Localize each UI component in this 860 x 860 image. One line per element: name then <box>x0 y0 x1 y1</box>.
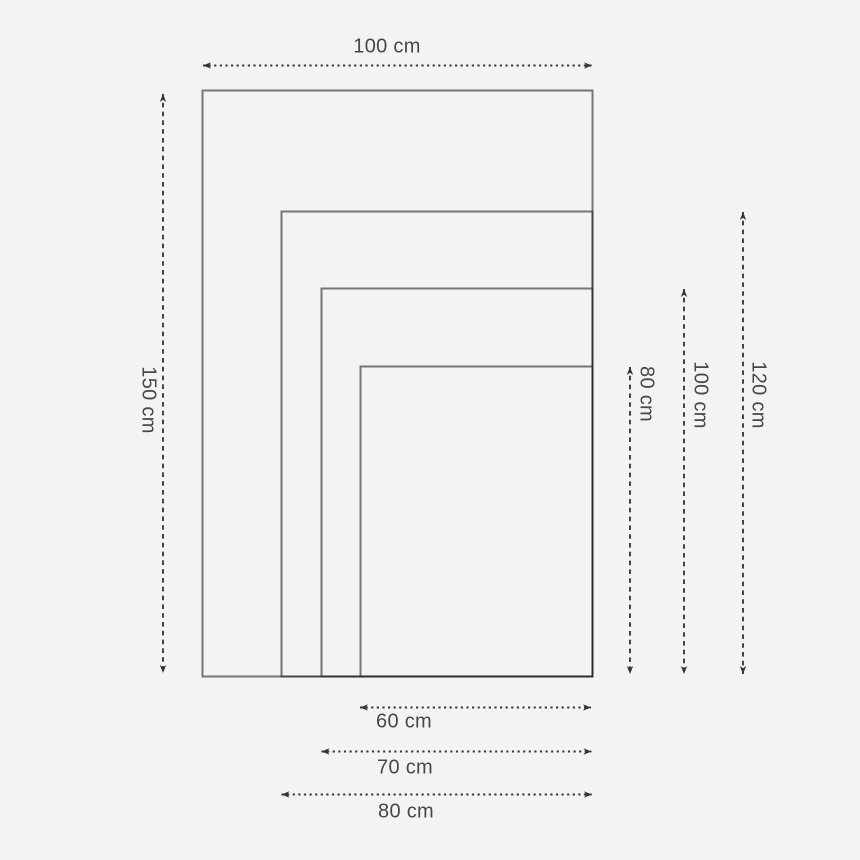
size-comparison-diagram: 100 cm 150 cm 80 cm 100 cm 120 cm 60 cm … <box>0 0 860 860</box>
label-bottom-width-70cm: 70 cm <box>377 757 433 780</box>
label-bottom-width-80cm: 80 cm <box>378 801 434 824</box>
label-left-height-150cm: 150 cm <box>137 366 160 433</box>
rect-80x120-cm <box>282 212 593 677</box>
label-right-height-100cm: 100 cm <box>689 361 712 428</box>
rect-60x80-cm <box>361 367 593 677</box>
rect-100x150-cm <box>203 91 593 677</box>
label-right-height-80cm: 80 cm <box>635 366 658 422</box>
label-right-height-120cm: 120 cm <box>747 361 770 428</box>
label-top-width-100cm: 100 cm <box>353 36 420 59</box>
rect-70x100-cm <box>322 289 593 677</box>
label-bottom-width-60cm: 60 cm <box>376 711 432 734</box>
